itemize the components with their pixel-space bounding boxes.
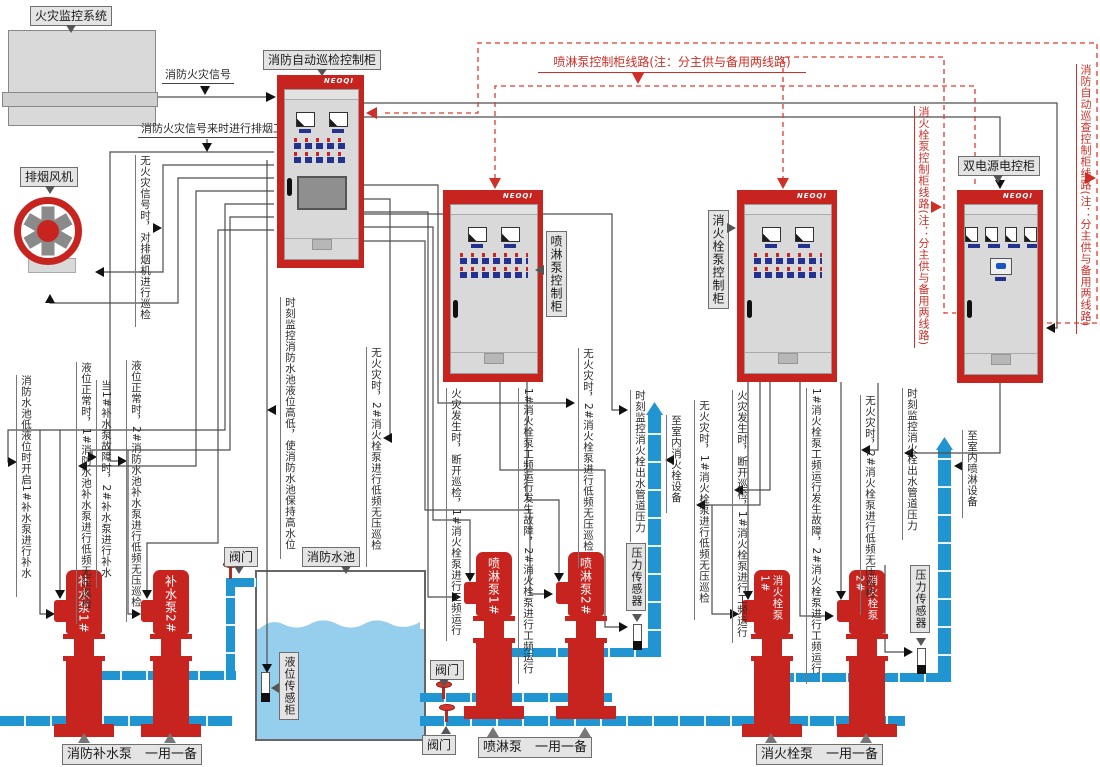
cabinet-top-strip [965,205,1037,215]
hydrant-control-cabinet: NEOQI [737,190,837,382]
pressure-sensor-device-spray [633,624,642,650]
spray-cabinet-label: 喷淋泵控制柜 [546,231,567,317]
valve-arrow-2 [439,679,449,687]
indicator-lights [745,267,831,278]
brand-logo: NEOQI [503,192,533,200]
cabinet-nameplate [484,353,504,364]
pressure-sensor-label-hydrant: 压力传感器 [910,565,930,633]
level-sensor-device [261,672,270,702]
note-fan: 无火灾信号时，对排烟机进行巡检 [135,155,152,327]
valve-arrow-1 [234,566,244,574]
console-shelf [2,92,158,107]
note-hydrant-pressure: 时刻监控消火栓出水管道压力 [902,388,919,540]
footer-arrow [765,733,777,743]
gauge-icon [1005,227,1018,242]
smoke-work-note: 消防火灾信号来时进行排烟工作 [138,120,298,138]
gauge-icon [762,227,781,242]
pool-label-arrow [341,566,351,574]
fire-monitoring-console [8,30,156,94]
cabinet-handle [453,300,458,318]
indicator-lights [745,253,831,264]
cabinet-nameplate [312,239,332,250]
cabinet-handle [287,178,292,196]
footer-makeup-pumps: 消防补水泵 一用一备 [62,744,202,765]
brand-logo: NEOQI [1003,192,1033,200]
pool-label: 消防水池 [302,547,360,567]
pressure-sensor-arrow-spray [632,614,642,622]
note-spray-idle2: 无火灾时，2#消火栓泵进行低频无压巡检 [578,348,595,568]
fan-label: 排烟风机 [20,167,78,187]
footer-spray-pumps: 喷淋泵 一用一备 [478,737,592,758]
cabinet-top-strip [451,205,537,215]
level-sensor-arrow [271,683,279,693]
footer-arrow [78,733,90,743]
cabinet-top-strip [285,90,358,100]
cabinet-top-strip [745,205,831,215]
dual-power-label-arrow [993,175,1003,183]
footer-hydrant-pumps: 消火栓泵 一用一备 [756,744,883,765]
cabinet-handle [967,300,972,318]
gauge-icon [468,227,487,242]
gauge-icon [795,227,814,242]
note-hydrant-fire: 火灾发生时，断开巡检，1#消火栓泵进行工频运行 [732,390,749,643]
gauge-icon [1024,227,1037,242]
note-makeup-d: 液位正常时，2#消防水池补水泵进行低频无压巡检 [126,360,143,622]
valve-arrow-3 [441,726,451,734]
fire-signal-note: 消防火灾信号 [162,66,234,84]
cabinet-nameplate [778,353,798,364]
note-hydrant-idle1: 无火灾时，1#消火栓泵进行低频无压巡检 [694,400,711,620]
cabinet-handle [747,300,752,318]
note-spray-idle2-left: 无火灾时，2#消火栓泵进行低频无压巡检 [366,347,383,567]
red-note-hydrant-line: 消火栓泵控制柜线路(注：分主供与备用两线路) [914,106,931,348]
red-note-spray-line: 喷淋泵控制柜线路(注：分主供与备用两线路) [538,53,806,73]
main-cabinet-label-arrow [317,69,327,76]
pressure-sensor-arrow-hydrant [916,638,926,646]
valve-label-1: 阀门 [224,547,258,567]
level-sensor-label: 液位传感柜 [279,652,299,720]
spray-cabinet-label-arrow [535,265,544,275]
note-spray-pressure: 时刻监控消火栓出水管道压力 [630,390,647,542]
fan-label-arrow [45,186,55,194]
valve-label-3: 阀门 [422,735,456,755]
main-cabinet-label: 消防自动巡检控制柜 [263,50,381,70]
fire-system-label: 火灾监控系统 [30,6,112,26]
pressure-sensor-device-hydrant [917,648,926,674]
gauge-icon [501,227,520,242]
brand-logo: NEOQI [324,77,354,85]
indicator-lights [451,253,537,264]
cabinet-nameplate [991,354,1011,365]
gauge-icon [329,112,348,127]
cabinet-screen [297,176,347,210]
note-hydrant-to: 至室内喷淋设备 [962,430,979,518]
note-makeup-a: 消防水池低液位时开启1#补水泵进行补水 [16,375,33,597]
smoke-exhaust-fan [14,197,82,265]
main-inspection-cabinet: NEOQI [277,75,364,268]
gauge-icon [985,227,998,242]
brand-logo: NEOQI [797,192,827,200]
transfer-switch-icon [990,258,1012,275]
hydrant-cabinet-label-arrow [727,223,736,233]
note-spray-to: 至室内消火栓设备 [666,415,683,513]
gauge-icon [965,227,978,242]
note-makeup-c: 当1#补水泵故障时，2#补水泵进行补水 [96,380,113,588]
footer-arrow [860,733,872,743]
fire-system-label-arrow [66,25,76,33]
fan-hub [37,220,59,242]
fire-pump-inspection-diagram: 液位传感柜 阀门 阀门 阀门 消防水池 火灾监控系统 排烟风机 NEOQI [0,0,1100,767]
dual-power-cabinet: NEOQI [957,190,1043,383]
indicator-lights [451,267,537,278]
indicator-lights [285,152,358,163]
footer-arrow [579,727,591,737]
footer-arrow [164,733,176,743]
console-body [8,105,156,126]
red-note-auto-line: 消防自动巡查控制柜线路(注：分主供与备用两线路) [1076,64,1093,334]
note-hydrant-idle2: 无火灾时，2#消火栓泵进行低频无压巡检 [860,395,877,615]
fan-blade [42,241,55,256]
footer-arrow [487,727,499,737]
spray-control-cabinet: NEOQI [443,190,543,382]
note-spray-fault: 1#消火栓泵工频运行发生故障，2#消火栓泵进行工频运行 [518,388,535,684]
indicator-lights [285,138,358,149]
note-pool-level: 时刻监控消防水池液位高低，使消防水池保持高水位 [280,297,297,559]
hydrant-cabinet-label: 消火栓泵控制柜 [708,210,729,309]
gauge-icon [296,112,315,127]
note-makeup-b: 液位正常时，1#消防水池补水泵进行低频无压巡检 [76,362,93,624]
note-spray-fire: 火灾发生时，断开巡检，1#消火栓泵进行工频运行 [446,388,463,641]
valve-label-2: 阀门 [430,660,464,680]
dual-power-label: 双电源电控柜 [958,156,1040,176]
pressure-sensor-label-spray: 压力传感器 [626,543,646,611]
note-hydrant-fault: 1#消火栓泵工频运行发生故障，2#消火栓泵进行工频运行 [806,388,823,684]
